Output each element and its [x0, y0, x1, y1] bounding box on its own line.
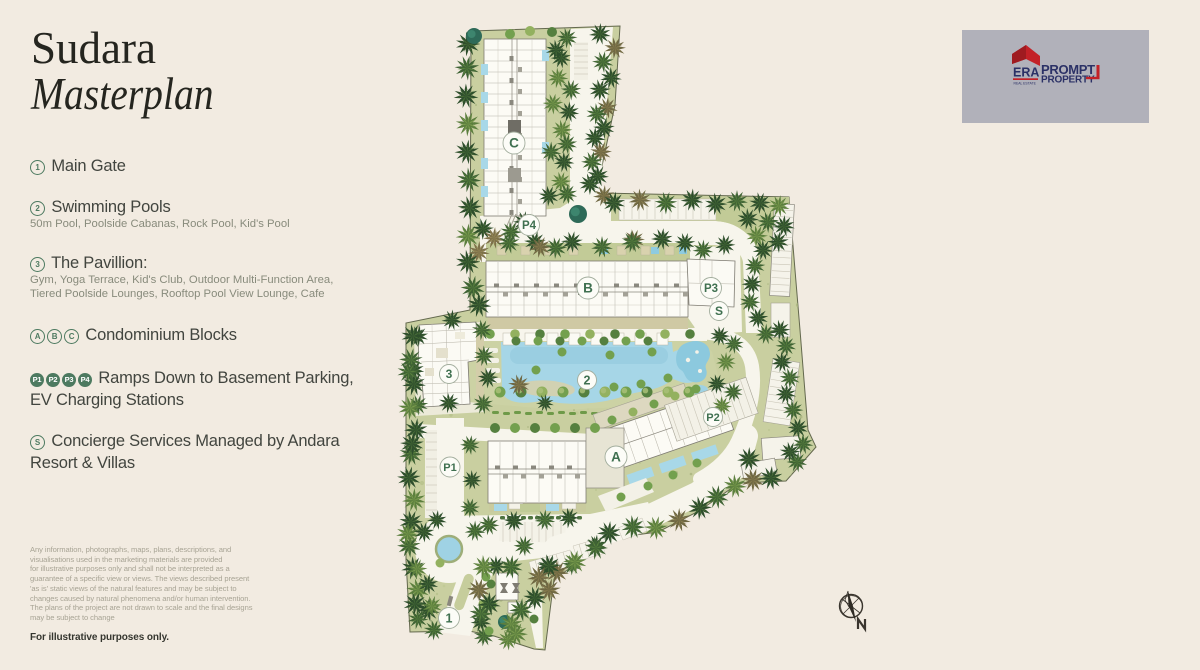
- svg-text:P4: P4: [522, 220, 537, 232]
- svg-text:3: 3: [446, 367, 453, 381]
- svg-text:P3: P3: [704, 283, 718, 295]
- svg-text:2: 2: [584, 373, 591, 387]
- svg-text:P2: P2: [706, 412, 719, 424]
- svg-text:C: C: [509, 136, 519, 151]
- svg-text:S: S: [715, 304, 723, 318]
- svg-text:P1: P1: [443, 462, 456, 474]
- svg-text:1: 1: [446, 611, 453, 625]
- svg-text:B: B: [583, 281, 593, 296]
- svg-text:A: A: [611, 450, 621, 465]
